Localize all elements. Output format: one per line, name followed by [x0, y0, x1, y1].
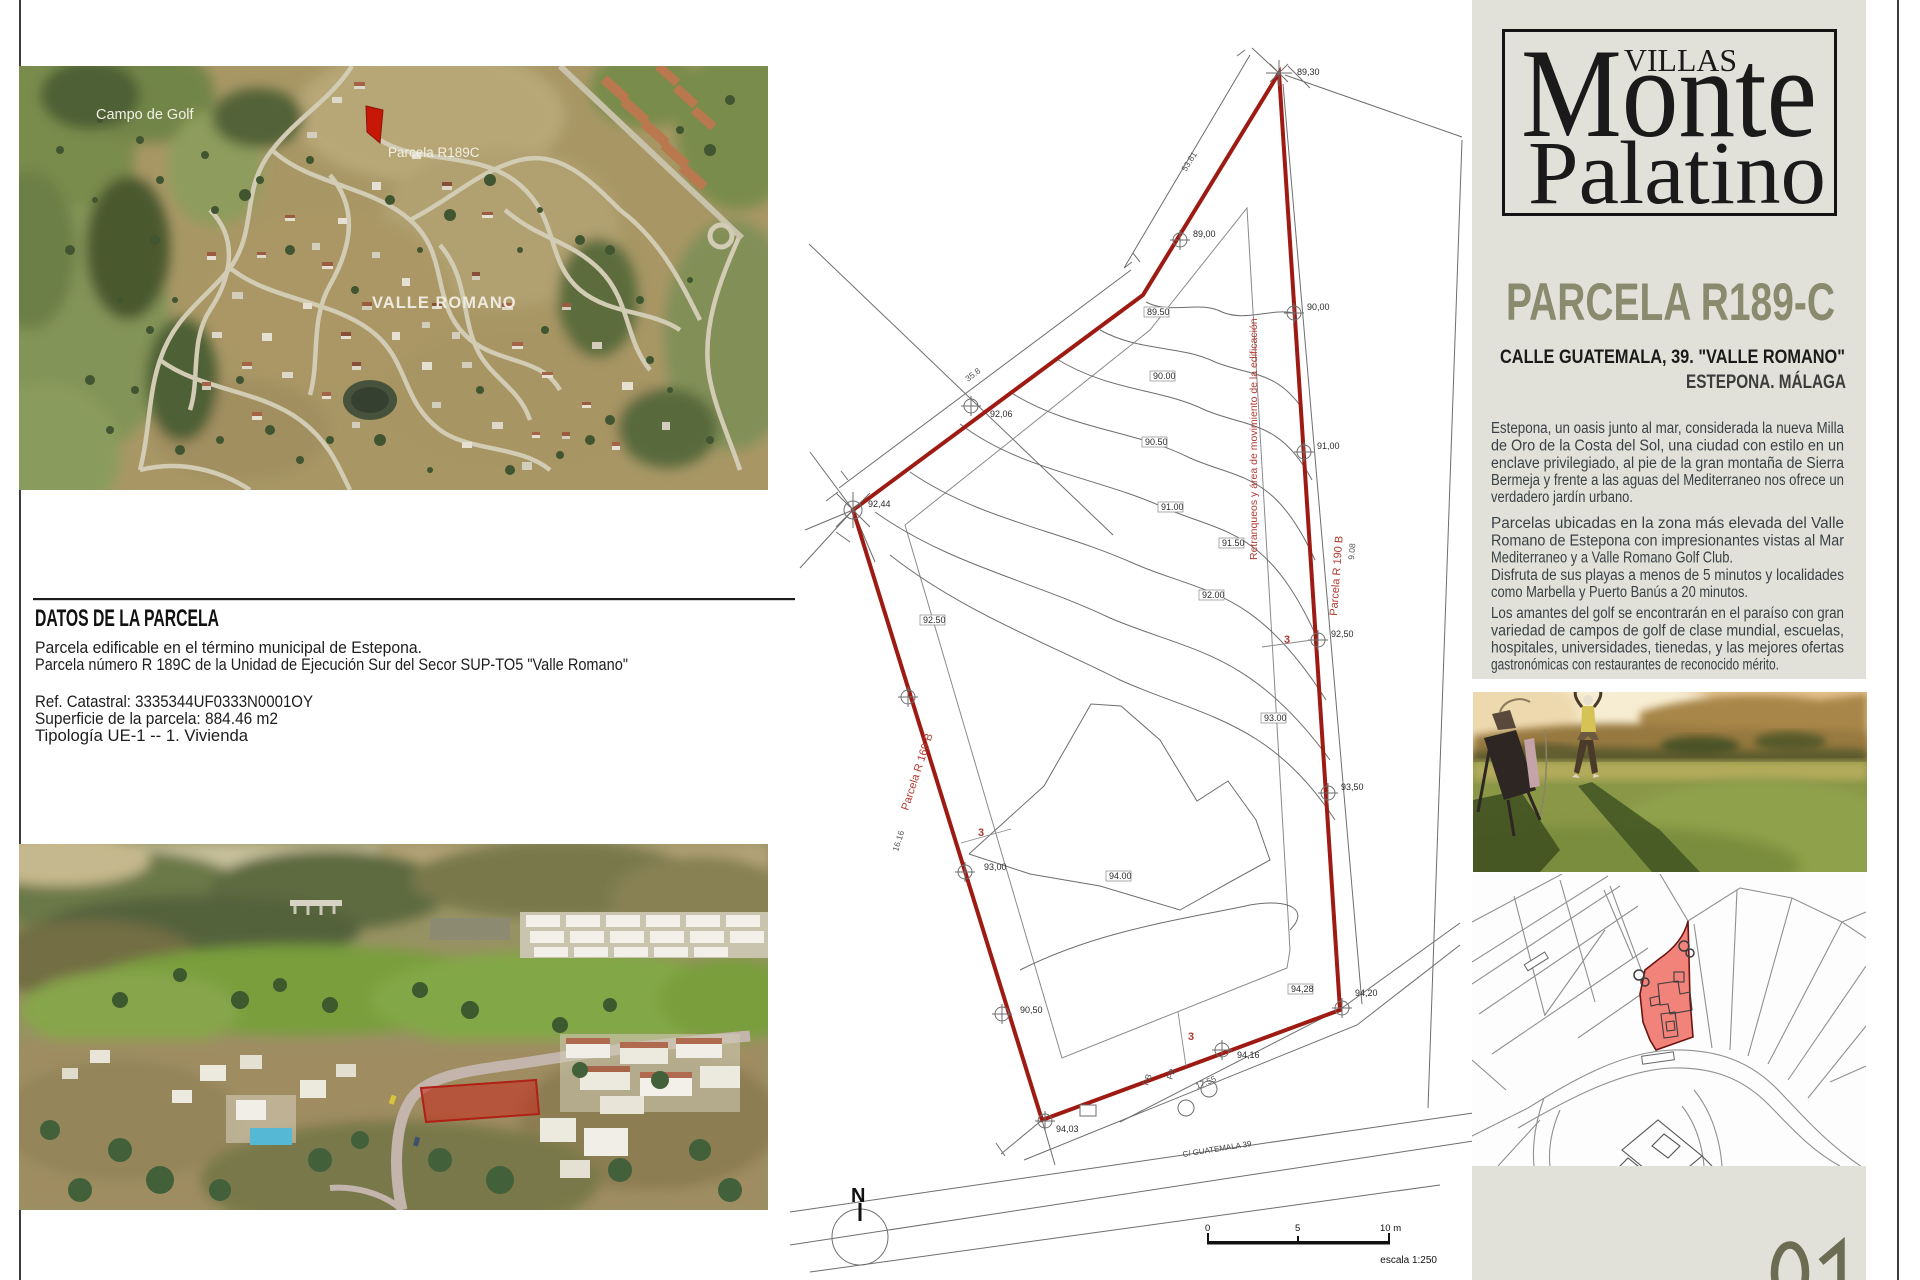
svg-text:3: 3: [1188, 1031, 1194, 1043]
svg-text:89.50: 89.50: [1147, 307, 1170, 317]
svg-text:0: 0: [1205, 1223, 1210, 1234]
svg-text:Romano de Estepona con impresi: Romano de Estepona con impresionantes vi…: [1491, 533, 1844, 550]
svg-text:94,16: 94,16: [1237, 1050, 1260, 1060]
svg-text:verdadero jardín urbano.: verdadero jardín urbano.: [1491, 489, 1633, 506]
svg-text:VALLE ROMANO: VALLE ROMANO: [372, 294, 517, 312]
svg-text:93,00: 93,00: [984, 862, 1007, 872]
svg-text:Retranqueos y área de movimien: Retranqueos y área de movimiento de la e…: [1248, 318, 1260, 560]
svg-text:94,20: 94,20: [1355, 988, 1378, 998]
svg-text:9.08: 9.08: [1346, 543, 1357, 561]
svg-text:gastronómicas con restaurantes: gastronómicas con restaurantes de recono…: [1491, 657, 1779, 674]
svg-text:Parcela R189C: Parcela R189C: [388, 145, 480, 160]
svg-text:DATOS DE LA PARCELA: DATOS DE LA PARCELA: [35, 605, 219, 632]
svg-text:91.00: 91.00: [1161, 502, 1184, 512]
svg-text:5: 5: [1295, 1223, 1300, 1234]
svg-text:90,50: 90,50: [1020, 1005, 1043, 1015]
svg-text:PARCELA R189-C: PARCELA R189-C: [1506, 273, 1835, 332]
svg-text:92.50: 92.50: [923, 615, 946, 625]
svg-text:como Marbella y Puerto Banús a: como Marbella y Puerto Banús a 20 minuto…: [1491, 584, 1748, 601]
svg-text:92,44: 92,44: [868, 499, 891, 509]
svg-text:93,50: 93,50: [1341, 782, 1364, 792]
svg-text:Parcela número R 189C de la Un: Parcela número R 189C de la Unidad de Ej…: [35, 656, 628, 674]
svg-text:enclave privilegiado, al pie d: enclave privilegiado, al pie de la gran …: [1491, 455, 1844, 472]
svg-text:94,03: 94,03: [1056, 1124, 1079, 1134]
svg-text:CALLE GUATEMALA, 39. "VALLE RO: CALLE GUATEMALA, 39. "VALLE ROMANO": [1500, 346, 1845, 368]
svg-text:Ref. Catastral: 3335344UF0333N: Ref. Catastral: 3335344UF0333N0001OY: [35, 693, 313, 711]
svg-text:90.50: 90.50: [1145, 437, 1168, 447]
svg-text:90.00: 90.00: [1153, 371, 1176, 381]
svg-text:Bermeja y frente a las aguas d: Bermeja y frente a las aguas del Mediter…: [1491, 472, 1844, 489]
svg-text:escala 1:250: escala 1:250: [1380, 1255, 1437, 1266]
svg-text:93.00: 93.00: [1264, 713, 1287, 723]
svg-text:Superficie de la parcela: 884.: Superficie de la parcela: 884.46 m2: [35, 710, 278, 728]
svg-text:91,00: 91,00: [1317, 441, 1340, 451]
svg-text:94.00: 94.00: [1109, 871, 1132, 881]
svg-text:89,00: 89,00: [1193, 229, 1216, 239]
svg-text:N: N: [851, 1185, 865, 1207]
svg-text:Disfruta de sus playas a menos: Disfruta de sus playas a menos de 5 minu…: [1491, 567, 1844, 584]
svg-text:Parcela edificable en el térmi: Parcela edificable en el término municip…: [35, 639, 422, 657]
svg-text:91.50: 91.50: [1222, 538, 1245, 548]
svg-text:92,50: 92,50: [1331, 629, 1354, 639]
svg-text:de Oro de la Costa del Sol, un: de Oro de la Costa del Sol, una ciudad c…: [1491, 438, 1844, 455]
svg-text:Estepona, un oasis junto al ma: Estepona, un oasis junto al mar, conside…: [1491, 420, 1844, 437]
svg-text:92.00: 92.00: [1202, 590, 1225, 600]
svg-text:94,28: 94,28: [1291, 984, 1314, 994]
svg-text:Tipología UE-1 -- 1. Vivienda: Tipología UE-1 -- 1. Vivienda: [35, 727, 249, 745]
svg-text:hospitales, universidades, tie: hospitales, universidades, tienedas, y l…: [1491, 640, 1844, 657]
svg-text:Mediterraneo y a Valle Romano: Mediterraneo y a Valle Romano Golf Club.: [1491, 550, 1733, 567]
svg-text:Los amantes del golf se encont: Los amantes del golf se encontrarán en e…: [1491, 605, 1844, 622]
svg-text:variedad de campos de golf de: variedad de campos de golf de clase mund…: [1491, 623, 1844, 640]
svg-text:Campo de Golf: Campo de Golf: [96, 107, 194, 123]
svg-text:Palatino: Palatino: [1528, 124, 1826, 223]
svg-text:92,06: 92,06: [990, 409, 1013, 419]
svg-text:Parcelas ubicadas en la zona m: Parcelas ubicadas en la zona más elevada…: [1491, 515, 1844, 532]
svg-text:90,00: 90,00: [1307, 302, 1330, 312]
svg-text:89,30: 89,30: [1297, 67, 1320, 77]
svg-text:ESTEPONA. MÁLAGA: ESTEPONA. MÁLAGA: [1686, 371, 1846, 393]
svg-text:10 m: 10 m: [1380, 1223, 1401, 1234]
